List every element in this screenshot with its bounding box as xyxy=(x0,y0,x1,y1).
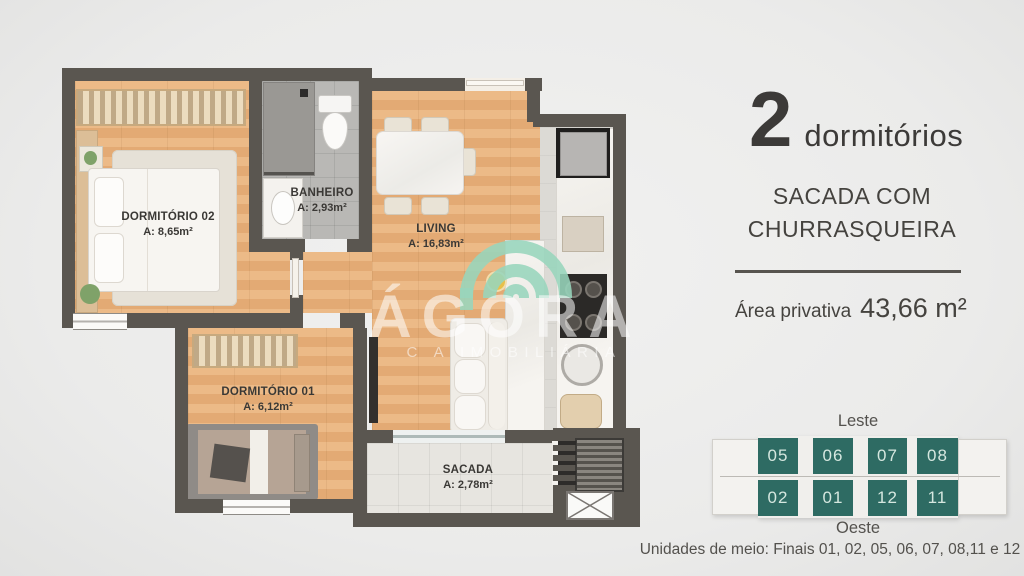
divider xyxy=(735,270,961,273)
stove xyxy=(560,274,607,338)
room-label-dormitorio-01: DORMITÓRIO 01A: 6,12m² xyxy=(221,386,314,413)
window xyxy=(73,313,127,330)
plant-icon xyxy=(80,284,100,304)
wall-segment xyxy=(290,295,303,328)
unit-08: 08 xyxy=(917,438,958,474)
feature-line1: SACADA COM xyxy=(735,180,969,213)
building-middle: 05 06 07 08 02 01 12 11 xyxy=(758,436,958,518)
unit-06: 06 xyxy=(813,438,853,474)
floor-hall xyxy=(303,252,372,313)
bedrooms-count: 2 xyxy=(749,80,792,158)
feature-line2: CHURRASQUEIRA xyxy=(735,213,969,246)
building-diagram: Leste 05 06 07 08 02 01 12 11 Oeste Unid… xyxy=(630,408,1024,576)
wall-segment xyxy=(367,430,393,443)
units-caption: Unidades de meio: Finais 01, 02, 05, 06,… xyxy=(638,541,1022,559)
wall-segment xyxy=(175,328,188,512)
wall-segment xyxy=(362,78,465,91)
shower xyxy=(263,82,315,176)
fridge xyxy=(560,132,607,176)
east-label: Leste xyxy=(838,412,878,431)
door-leaf xyxy=(292,258,299,298)
fruit-bowl xyxy=(486,271,507,292)
grill-rack xyxy=(575,438,624,492)
feature-text: SACADA COM CHURRASQUEIRA xyxy=(735,180,969,246)
laundry-tank xyxy=(560,394,602,429)
building-end-west xyxy=(712,439,759,515)
wall-segment xyxy=(62,68,372,81)
wall-segment xyxy=(175,499,223,513)
sofa xyxy=(450,318,508,434)
unit-12: 12 xyxy=(868,480,907,516)
corridor-line xyxy=(720,476,1000,477)
unit-11: 11 xyxy=(917,480,958,516)
dining-table xyxy=(376,131,464,195)
window xyxy=(223,499,290,515)
room-label-living: LIVINGA: 16,83m² xyxy=(408,223,464,250)
room-label-banheiro: BANHEIROA: 2,93m² xyxy=(291,187,354,214)
floor-dormitorio-02-ext xyxy=(249,252,290,313)
skewer-icon xyxy=(558,481,576,485)
kitchen-sink xyxy=(561,344,603,386)
countertop-appliance xyxy=(562,216,604,252)
dining-chair xyxy=(421,197,449,215)
wall-segment xyxy=(340,313,365,328)
dining-chair xyxy=(384,197,412,215)
wall-segment xyxy=(62,68,75,328)
floorplan: DORMITÓRIO 02A: 8,65m² BANHEIROA: 2,93m²… xyxy=(0,0,660,576)
toilet-icon xyxy=(318,95,352,113)
room-label-sacada: SACADAA: 2,78m² xyxy=(443,464,493,491)
skewer-icon xyxy=(558,471,576,475)
unit-07: 07 xyxy=(868,438,907,474)
wall-segment xyxy=(249,239,305,252)
wall-segment xyxy=(353,328,367,513)
info-panel: 2 dormitórios SACADA COM CHURRASQUEIRA Á… xyxy=(735,80,985,324)
area-label: Área privativa xyxy=(735,301,851,323)
sliding-door xyxy=(393,430,505,443)
unit-05: 05 xyxy=(758,438,798,474)
wall-segment xyxy=(613,114,626,434)
wall-segment xyxy=(359,80,372,252)
unit-01: 01 xyxy=(813,480,853,516)
wall-segment xyxy=(127,313,296,328)
single-bed xyxy=(186,424,318,500)
entry-door xyxy=(465,78,525,91)
west-label: Oeste xyxy=(836,519,880,538)
wardrobe-dorm02 xyxy=(76,89,246,126)
unit-02: 02 xyxy=(758,480,798,516)
area-value: 43,66 m² xyxy=(860,293,967,324)
private-area: Área privativa 43,66 m² xyxy=(735,293,985,324)
wardrobe-dorm01 xyxy=(192,334,298,368)
wall-segment xyxy=(347,239,372,252)
skewer-icon xyxy=(558,461,576,465)
bedrooms-header: 2 dormitórios xyxy=(749,80,985,158)
wall-segment xyxy=(249,80,262,252)
building-end-east xyxy=(958,439,1007,515)
wall-segment xyxy=(62,313,73,328)
skewer-icon xyxy=(558,451,576,455)
room-label-dormitorio-02: DORMITÓRIO 02A: 8,65m² xyxy=(121,211,214,238)
bedrooms-label: dormitórios xyxy=(804,118,963,154)
kitchen-peninsula xyxy=(505,240,545,432)
building-footprint: 05 06 07 08 02 01 12 11 xyxy=(712,436,1008,518)
grill-box-icon xyxy=(566,491,614,520)
tv-panel xyxy=(369,337,378,423)
skewer-icon xyxy=(558,441,576,445)
